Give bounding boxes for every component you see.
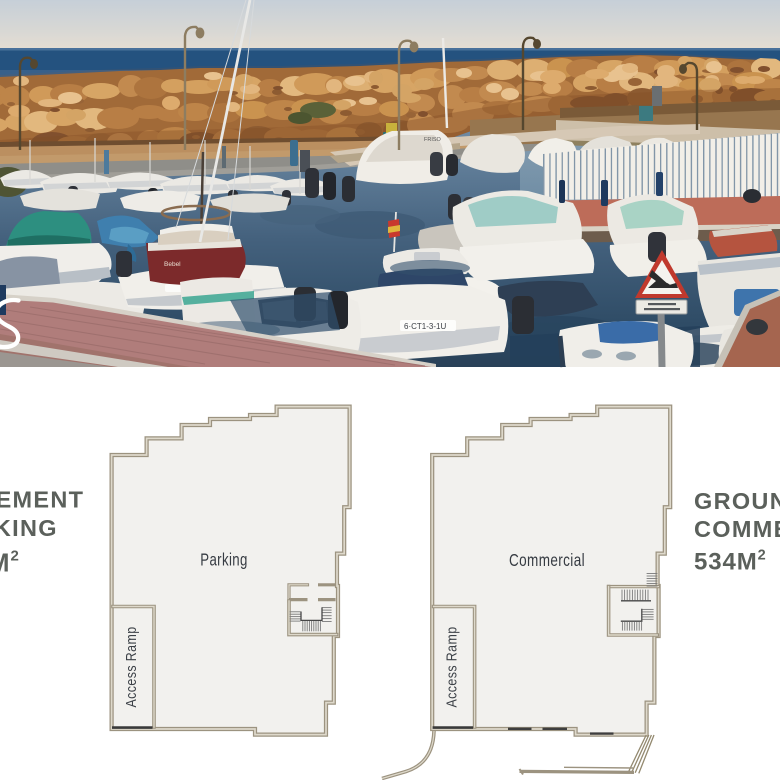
svg-text:Access Ramp: Access Ramp — [444, 627, 461, 708]
svg-text:KING: KING — [0, 515, 58, 541]
svg-text:M: M — [0, 550, 11, 578]
svg-text:2: 2 — [11, 548, 21, 565]
svg-text:Parking: Parking — [200, 550, 248, 570]
svg-text:GROUND: GROUND — [694, 488, 780, 514]
svg-text:EMENT: EMENT — [0, 487, 84, 513]
svg-text:COMMERCIAL: COMMERCIAL — [694, 516, 780, 542]
svg-text:534M2: 534M2 — [694, 548, 767, 576]
svg-text:Access Ramp: Access Ramp — [123, 627, 140, 708]
svg-text:Commercial: Commercial — [509, 550, 585, 570]
